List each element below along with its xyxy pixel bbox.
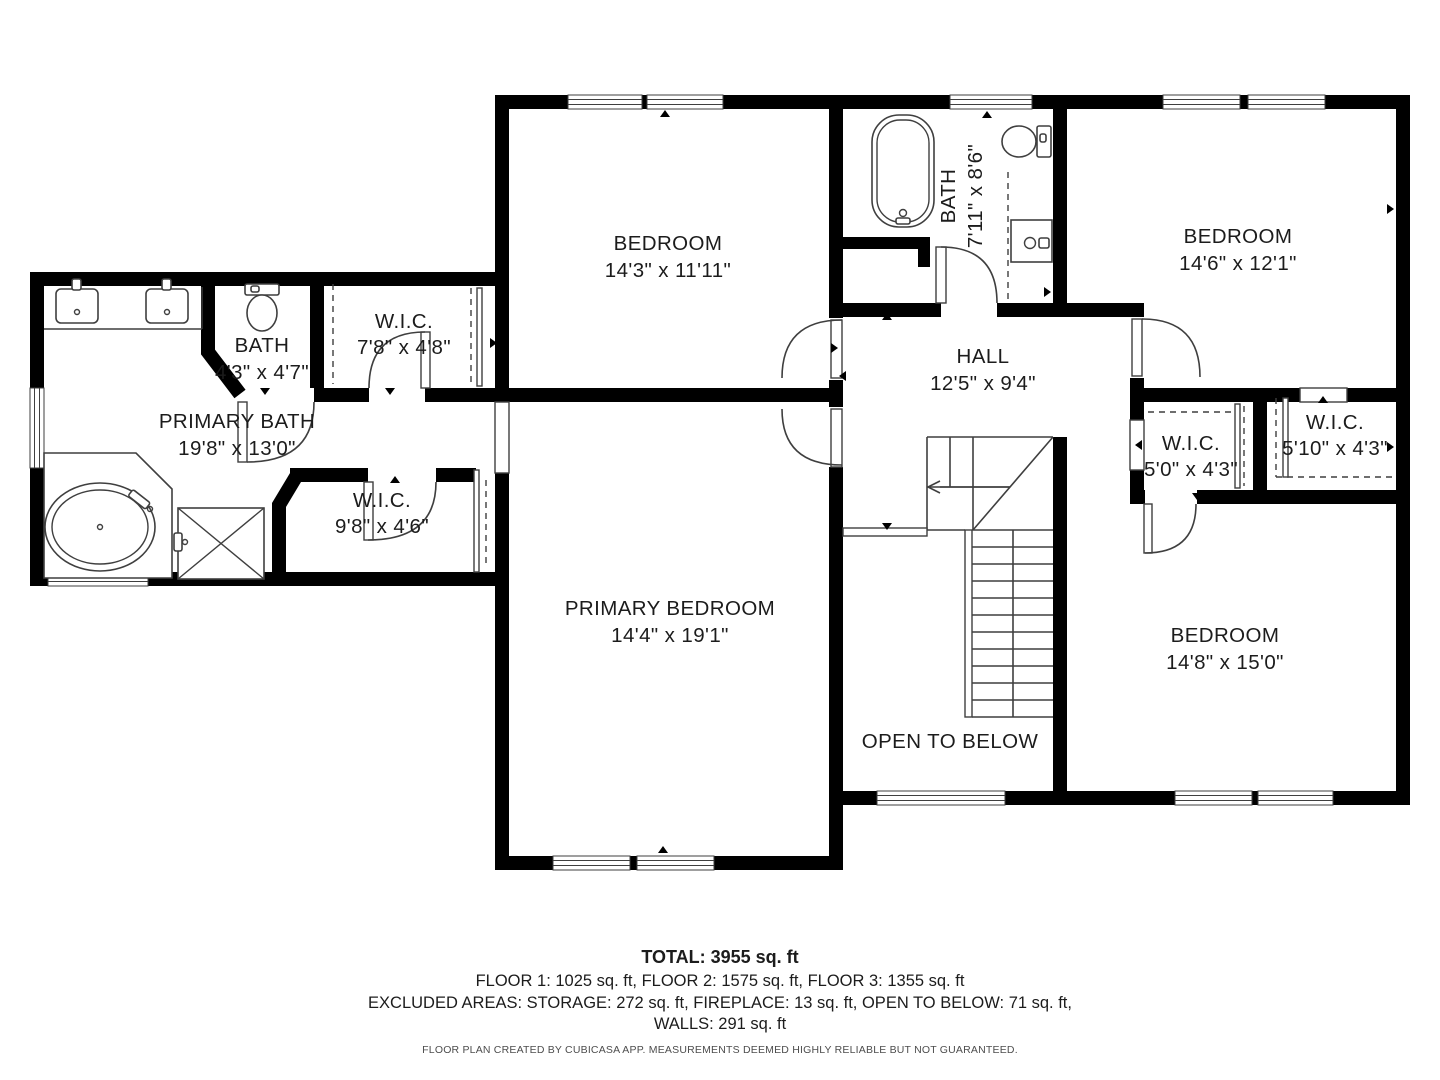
window <box>568 95 642 109</box>
door-leaf <box>831 409 842 467</box>
window <box>647 95 723 109</box>
room-label-bath2-dims: 7'11" x 8'6" <box>964 144 987 248</box>
room-label-primary-bath-dims: 19'8" x 13'0" <box>178 437 296 460</box>
door-arc <box>1142 319 1200 377</box>
door-leaf <box>936 247 946 303</box>
total-area-text: TOTAL: 3955 sq. ft <box>641 947 798 967</box>
window <box>30 388 44 468</box>
room-label-primary-bedroom-dims: 14'4" x 19'1" <box>611 624 729 647</box>
door-arc <box>941 247 997 303</box>
walls-layer <box>30 95 1410 870</box>
window <box>1258 791 1333 805</box>
room-label-wic2-name: W.I.C. <box>353 489 411 512</box>
window <box>553 856 630 870</box>
room-label-primary-bath-name: PRIMARY BATH <box>159 410 315 433</box>
faucet-icon <box>162 279 171 290</box>
room-label-bedroom2-name: BEDROOM <box>1184 225 1293 248</box>
faucet-icon <box>72 279 81 290</box>
shower-icon <box>174 508 264 579</box>
shower-valve-icon <box>174 533 182 551</box>
window <box>1248 95 1325 109</box>
room-label-bedroom3-dims: 14'8" x 15'0" <box>1166 651 1284 674</box>
room-label-hall-name: HALL <box>957 345 1010 368</box>
footer-summary: TOTAL: 3955 sq. ft FLOOR 1: 1025 sq. ft,… <box>368 947 1072 1056</box>
room-label-bath1-dims: 4'3" x 4'7" <box>215 361 309 384</box>
staircase <box>843 437 1053 717</box>
room-label-wic1-name: W.I.C. <box>375 310 433 333</box>
room-label-bedroom1-dims: 14'3" x 11'11" <box>605 259 731 282</box>
door-leaf <box>1132 319 1142 376</box>
room-label-bedroom2-dims: 14'6" x 12'1" <box>1179 252 1297 275</box>
room-label-bath2-name: BATH <box>937 169 960 224</box>
sink-icon <box>146 289 188 323</box>
bathtub-icon <box>872 115 934 227</box>
bathtub-icon <box>44 453 172 578</box>
window <box>637 856 714 870</box>
landing-edge-wall <box>843 528 927 536</box>
toilet-icon <box>1002 126 1051 157</box>
markers-layer <box>32 110 1394 853</box>
room-labels: BEDROOM 14'3" x 11'11" BATH 7'11" x 8'6"… <box>159 144 1388 753</box>
room-label-bedroom1-name: BEDROOM <box>614 232 723 255</box>
walls-area-text: WALLS: 291 sq. ft <box>654 1015 787 1033</box>
floor-plan-canvas: BEDROOM 14'3" x 11'11" BATH 7'11" x 8'6"… <box>0 0 1440 1080</box>
stair-side-wall <box>965 530 972 717</box>
tub-faucet-icon <box>896 218 910 224</box>
window <box>950 95 1032 109</box>
floor-areas-text: FLOOR 1: 1025 sq. ft, FLOOR 2: 1575 sq. … <box>476 972 965 990</box>
room-label-bedroom3-name: BEDROOM <box>1171 624 1280 647</box>
door-leaf <box>1144 504 1152 553</box>
window <box>877 791 1005 805</box>
sink-icon <box>56 289 98 323</box>
window <box>1163 95 1240 109</box>
double-vanity <box>44 279 202 329</box>
toilet-icon <box>245 284 279 331</box>
room-label-open-to-below: OPEN TO BELOW <box>862 730 1039 753</box>
room-label-wic3-dims: 5'0" x 4'3" <box>1144 458 1238 481</box>
room-label-wic2-dims: 9'8" x 4'6" <box>335 515 429 538</box>
disclaimer-text: FLOOR PLAN CREATED BY CUBICASA APP. MEAS… <box>422 1044 1018 1056</box>
room-label-wic3-name: W.I.C. <box>1162 432 1220 455</box>
excluded-areas-text: EXCLUDED AREAS: STORAGE: 272 sq. ft, FIR… <box>368 994 1072 1012</box>
window <box>1175 791 1252 805</box>
room-label-bath2: BATH 7'11" x 8'6" <box>937 144 987 248</box>
room-label-wic4-name: W.I.C. <box>1306 411 1364 434</box>
cased-opening <box>495 402 509 473</box>
room-label-wic1-dims: 7'8" x 4'8" <box>357 336 451 359</box>
room-label-hall-dims: 12'5" x 9'4" <box>930 372 1036 395</box>
room-label-wic4-dims: 5'10" x 4'3" <box>1282 437 1388 460</box>
room-label-primary-bedroom-name: PRIMARY BEDROOM <box>565 597 775 620</box>
room-label-bath1-name: BATH <box>235 334 290 357</box>
floor-plan-svg: BEDROOM 14'3" x 11'11" BATH 7'11" x 8'6"… <box>0 0 1440 1080</box>
vanity-icon <box>1008 172 1052 302</box>
